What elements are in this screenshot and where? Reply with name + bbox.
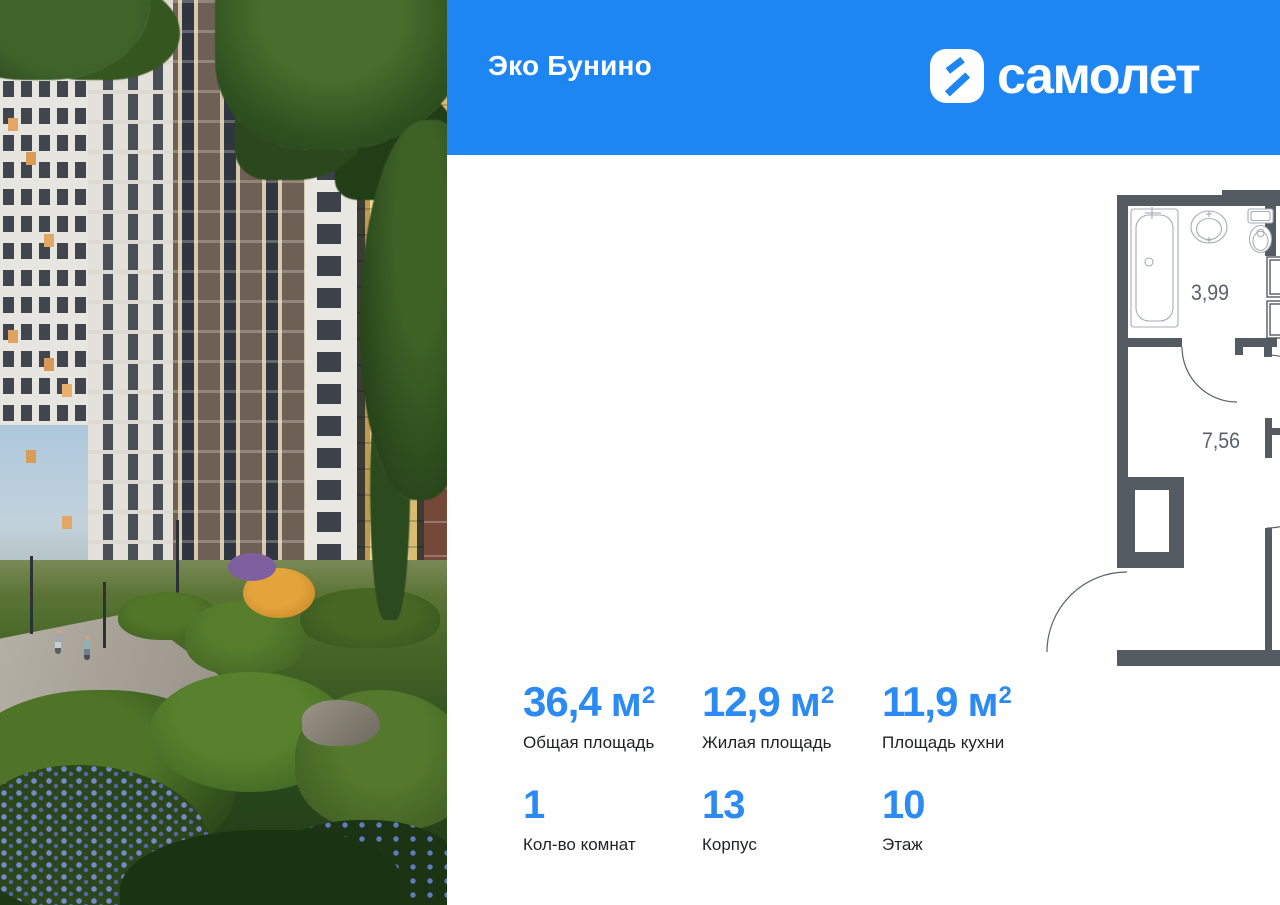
lilac-bush bbox=[228, 553, 276, 581]
washbasin bbox=[1191, 211, 1227, 243]
shaft-cabinets bbox=[1267, 257, 1280, 338]
stat-living-area: 12,9м2 Жилая площадь bbox=[702, 681, 833, 753]
stat-value: 12,9м2 bbox=[702, 681, 833, 723]
brand-name: самолет bbox=[997, 49, 1199, 103]
stat-rooms-count: 1 Кол-во комнат bbox=[523, 785, 636, 855]
stat-floor: 10 Этаж bbox=[882, 785, 925, 855]
info-panel: Эко Бунино самолет bbox=[447, 0, 1280, 905]
floor-plan: 3,99 11,90 7,56 12,92 bbox=[1027, 182, 1280, 677]
brand-logo: самолет bbox=[930, 49, 1199, 103]
bathtub bbox=[1131, 207, 1178, 327]
hedge bbox=[300, 588, 440, 648]
room-label-bathroom: 3,99 bbox=[1191, 280, 1229, 305]
pedestrian bbox=[84, 640, 90, 660]
pedestrian bbox=[55, 634, 61, 654]
samolet-chevron-icon bbox=[930, 49, 984, 103]
lamp-post bbox=[103, 582, 106, 648]
closet-niche bbox=[1135, 490, 1169, 552]
building-window-lights bbox=[8, 118, 18, 131]
stat-label: Этаж bbox=[882, 835, 925, 855]
stat-value: 1 bbox=[523, 785, 636, 825]
listing-card: Эко Бунино самолет bbox=[0, 0, 1280, 905]
stat-value: 13 bbox=[702, 785, 757, 825]
stat-label: Корпус bbox=[702, 835, 757, 855]
stat-kitchen-area: 11,9м2 Площадь кухни bbox=[882, 681, 1011, 753]
stat-label: Кол-во комнат bbox=[523, 835, 636, 855]
stat-label: Жилая площадь bbox=[702, 733, 833, 753]
stat-total-area: 36,4м2 Общая площадь bbox=[523, 681, 654, 753]
stat-building: 13 Корпус bbox=[702, 785, 757, 855]
stat-value: 36,4м2 bbox=[523, 681, 654, 723]
landscape-rock bbox=[302, 700, 380, 746]
room-label-hallway: 7,56 bbox=[1202, 428, 1240, 453]
lamp-post bbox=[30, 556, 33, 634]
stat-value: 11,9м2 bbox=[882, 681, 1011, 723]
project-photo bbox=[0, 0, 447, 905]
toilet bbox=[1248, 209, 1273, 253]
stat-label: Площадь кухни bbox=[882, 733, 1011, 753]
stat-label: Общая площадь bbox=[523, 733, 654, 753]
stat-value: 10 bbox=[882, 785, 925, 825]
header-bar: Эко Бунино самолет bbox=[447, 0, 1280, 155]
project-title: Эко Бунино bbox=[488, 50, 652, 82]
